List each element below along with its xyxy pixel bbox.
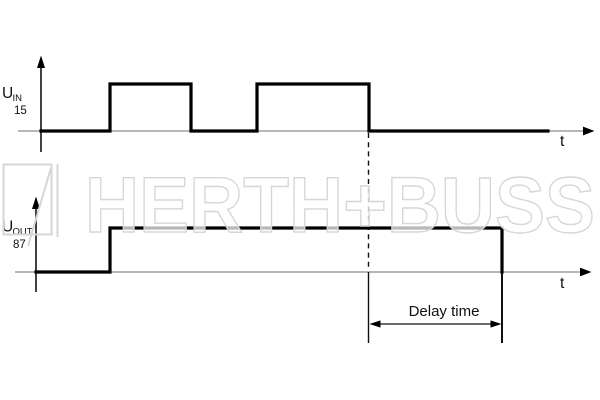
delay-arrowhead-left-icon — [370, 320, 381, 327]
input-signal-graph: U IN 15 t — [2, 56, 595, 153]
watermark: HERTH+BUSS — [4, 160, 596, 249]
u-in-subscript: IN — [13, 93, 23, 104]
timing-diagram-page: U IN 15 t U OUT 87 t Delay time — [0, 0, 600, 400]
brand-watermark-text: HERTH+BUSS — [85, 160, 595, 249]
time-label-bottom: t — [560, 275, 565, 292]
delay-arrowhead-right-icon — [491, 320, 502, 327]
delay-annotation: Delay time — [369, 272, 503, 343]
time-axis-bottom-arrowhead-icon — [580, 268, 592, 277]
voltage-axis-top-arrowhead-icon — [37, 56, 45, 69]
timing-diagram: U IN 15 t U OUT 87 t Delay time — [0, 0, 600, 400]
u-in-terminal: 15 — [14, 105, 27, 117]
u-out-terminal: 87 — [13, 239, 26, 251]
time-axis-top-arrowhead-icon — [583, 127, 595, 136]
delay-time-label: Delay time — [409, 303, 480, 320]
u-in-waveform — [41, 84, 548, 131]
time-label-top: t — [560, 133, 565, 150]
u-out-subscript: OUT — [13, 227, 33, 238]
